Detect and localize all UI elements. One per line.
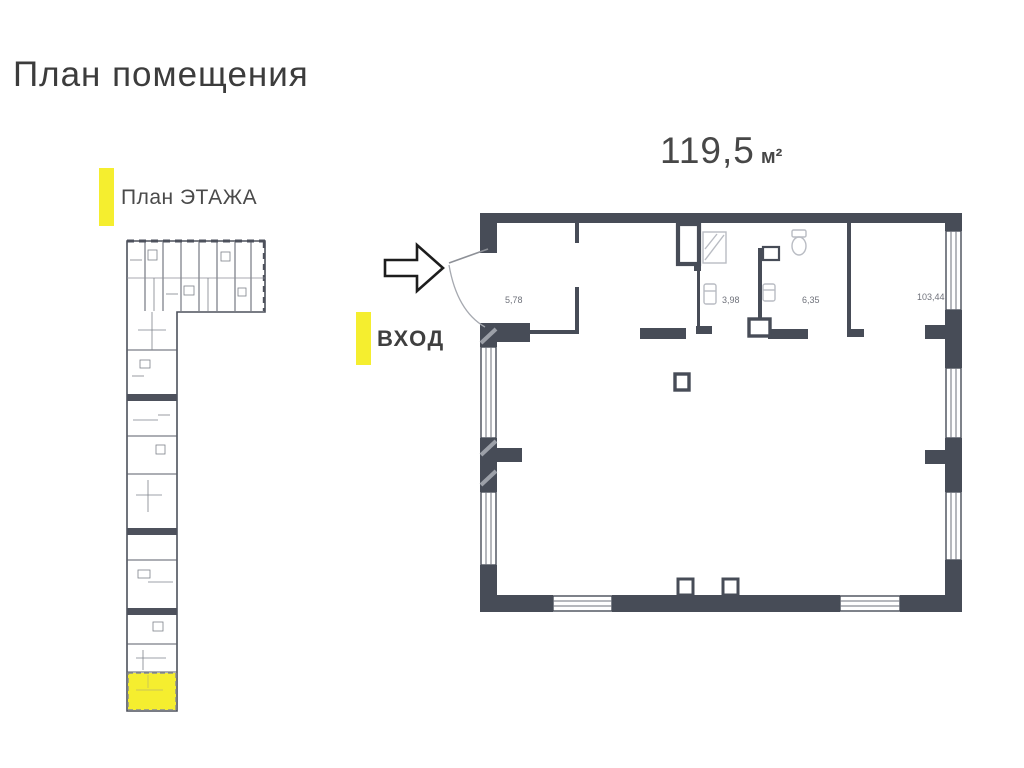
room-label-wc: 6,35 (802, 295, 820, 305)
shaft-wc (749, 319, 770, 336)
wc-door-leaf (763, 247, 779, 260)
page-title: План помещения (13, 55, 309, 95)
shower-icon (703, 232, 726, 263)
entrance-label: ВХОД (377, 326, 445, 352)
vestibule-wall-stub (575, 223, 579, 243)
wc-bottom-wall (768, 329, 808, 339)
room-area-labels: 5,78 3,98 6,35 103,44 (505, 292, 945, 305)
entrance-door-leaf (449, 249, 488, 263)
fixtures (703, 230, 806, 304)
radiator-left (497, 448, 522, 462)
wall-right-bottom-corner (945, 560, 962, 612)
wall-bottom-1 (480, 595, 553, 612)
floor-plan-label: План ЭТАЖА (121, 186, 257, 210)
radiator-right-2 (925, 450, 945, 464)
unit-floor-plan: 5,78 3,98 6,35 103,44 (445, 205, 980, 620)
shaft-top (678, 224, 699, 264)
bathroom-left-wall (697, 271, 700, 333)
entrance-door (449, 249, 488, 327)
wall-right-pier-1 (945, 310, 962, 368)
overview-selected-unit-highlight (128, 673, 176, 710)
sink-icon-bathroom (704, 284, 716, 304)
wc-right-wall (847, 223, 851, 333)
wc-right-wall-foot (847, 329, 864, 337)
overview-outline (127, 241, 265, 711)
floor-label-highlight-bar (99, 168, 114, 226)
window-right-3 (946, 492, 961, 560)
floor-overview-plan (118, 230, 278, 722)
radiator-right-1 (925, 325, 945, 339)
bathroom-wc-partition (758, 248, 762, 320)
door-swing-arc (449, 265, 485, 327)
wall-right-pier-2 (945, 438, 962, 492)
bathroom-left-wall-foot (696, 326, 712, 334)
shaft-left (497, 323, 530, 342)
entrance-arrow-icon (383, 242, 447, 294)
wall-right-top-corner (945, 213, 962, 231)
window-bottom-2 (840, 596, 900, 611)
window-left-1 (481, 347, 496, 438)
room-label-main-hall: 103,44 (917, 292, 945, 302)
window-bottom-1 (553, 596, 612, 611)
window-right-1 (946, 231, 961, 310)
floor-plan-page: { "title": "План помещения", "overview":… (0, 0, 1024, 768)
corridor-wall-segment (640, 328, 686, 339)
unit-area-unit: м² (761, 146, 782, 168)
unit-area-value: 119,5 (660, 130, 755, 171)
room-label-vestibule: 5,78 (505, 295, 523, 305)
wall-top (480, 213, 962, 223)
unit-area-label: 119,5м² (660, 130, 782, 172)
bottom-wall-columns (678, 579, 738, 595)
toilet-icon (792, 230, 806, 255)
window-left-2 (481, 492, 496, 565)
vestibule-wall-horizontal (527, 330, 579, 334)
window-right-2 (946, 368, 961, 438)
sink-icon-wc (763, 284, 775, 301)
wall-bottom-2 (612, 595, 840, 612)
entrance-label-highlight-bar (356, 312, 371, 365)
vestibule-wall-vertical (575, 287, 579, 334)
shafts (678, 224, 770, 336)
room-label-bathroom: 3,98 (722, 295, 740, 305)
hall-column (675, 374, 689, 390)
windows (481, 231, 961, 611)
wall-left-top-corner (480, 213, 497, 253)
outer-walls (480, 213, 962, 612)
